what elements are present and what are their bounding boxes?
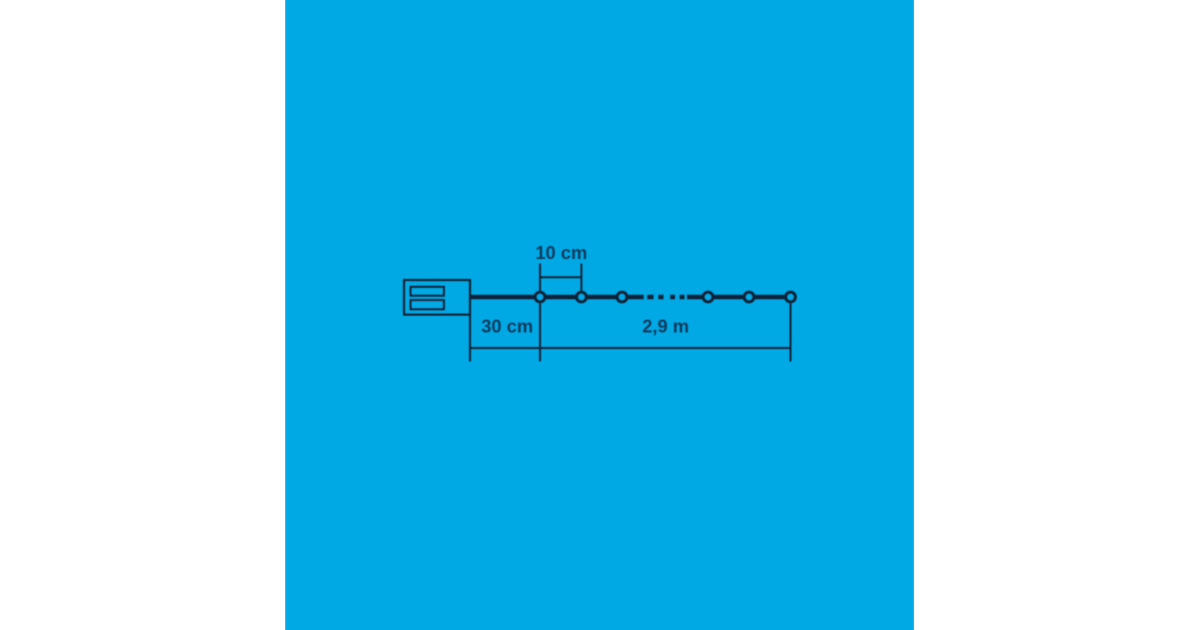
svg-text:2,9 m: 2,9 m (642, 316, 689, 337)
svg-text:30 cm: 30 cm (481, 316, 533, 337)
svg-text:10 cm: 10 cm (535, 242, 587, 263)
